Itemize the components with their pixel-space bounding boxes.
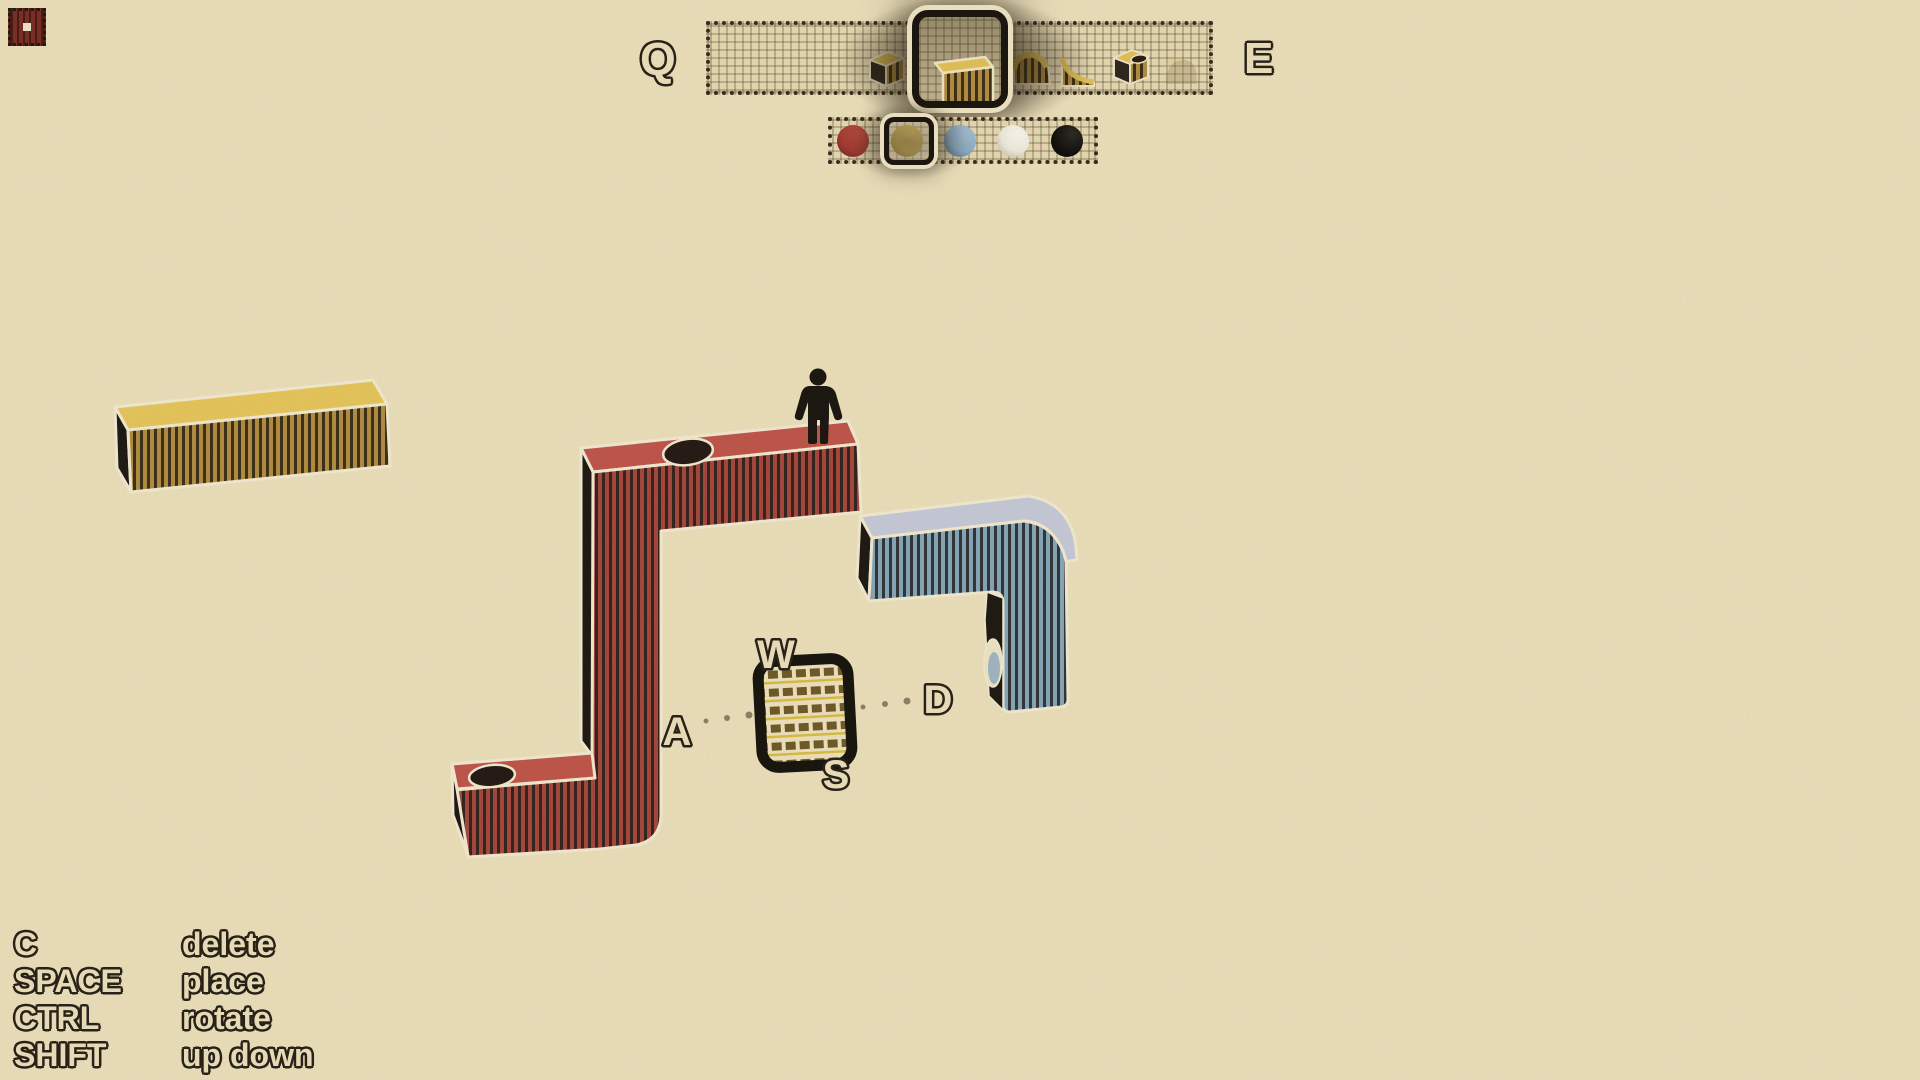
movement-dots-left [704, 712, 753, 724]
compass-letter-a: A [663, 710, 692, 754]
shortcut-action: up down [182, 1037, 314, 1074]
compass-letter-d: D [924, 678, 953, 722]
compass-letter-s: S [823, 753, 850, 797]
color-swatch-white[interactable] [997, 125, 1029, 157]
block-icon-ramp-convex[interactable] [1014, 54, 1050, 84]
block-icon-ghost[interactable] [1166, 59, 1197, 84]
shortcut-key: CTRL [14, 1000, 182, 1037]
minimap-player-dot [23, 23, 31, 31]
color-swatch-black[interactable] [1051, 125, 1083, 157]
shortcut-key: C [14, 926, 182, 963]
shortcut-key: SPACE [14, 963, 182, 1000]
shortcut-help: C delete SPACE place CTRL rotate SHIFT u… [14, 926, 314, 1074]
block-icon-cube-hole[interactable] [1114, 50, 1148, 84]
color-swatch-red[interactable] [837, 125, 869, 157]
shortcut-row: CTRL rotate [14, 1000, 314, 1037]
compass-letter-w: W [757, 633, 795, 677]
block-icon-cube[interactable] [870, 52, 904, 86]
shortcut-row: SHIFT up down [14, 1037, 314, 1074]
minimap-thumbnail [8, 8, 46, 46]
shortcut-row: SPACE place [14, 963, 314, 1000]
movement-dots-right [861, 698, 911, 710]
shortcut-action: place [182, 963, 264, 1000]
block-icon-ramp-concave[interactable] [1062, 58, 1094, 86]
selected-block-preview [919, 17, 1001, 101]
yellow-bar-block [115, 380, 390, 492]
shortcut-action: delete [182, 926, 274, 963]
cycle-left-key-label: Q [640, 32, 676, 86]
shortcut-row: C delete [14, 926, 314, 963]
selected-color-frame [884, 117, 934, 165]
shortcut-key: SHIFT [14, 1037, 182, 1074]
color-swatch-blue[interactable] [944, 125, 976, 157]
cycle-right-key-label: E [1244, 34, 1273, 84]
shortcut-action: rotate [182, 1000, 271, 1037]
red-tower-block [452, 421, 861, 857]
blue-arch-block [857, 496, 1077, 712]
selected-block-frame [912, 10, 1008, 108]
